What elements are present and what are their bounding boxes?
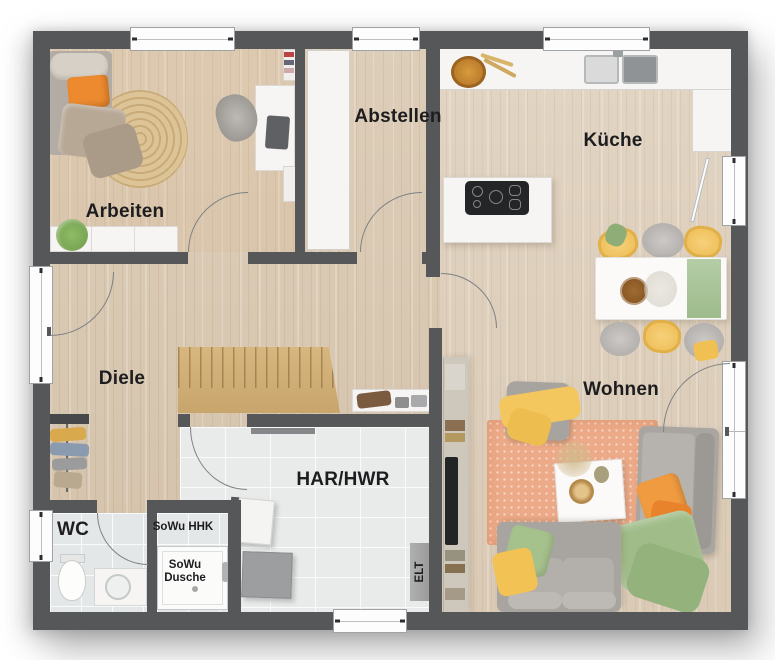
wc-sink: [105, 574, 131, 600]
sofa-back-cushion: [508, 592, 562, 609]
plant: [56, 219, 88, 251]
room-label-wc: WC: [57, 519, 89, 541]
kitchen-tall-cabinet: [692, 90, 731, 152]
wall-har-cap: [178, 414, 190, 427]
window-abstellen: [352, 27, 420, 51]
floor-plan: ELT: [0, 0, 775, 660]
elt-label: ELT: [414, 562, 426, 583]
label-sowu-hhk: SoWu HHK: [153, 521, 213, 533]
wall-arbeiten-south: [50, 252, 188, 264]
window-har: [333, 609, 407, 633]
coat-tan: [53, 471, 82, 489]
label-sowu-dusche: SoWu Dusche: [164, 559, 206, 585]
decor-bowl: [569, 479, 594, 504]
fruit-basket: [451, 56, 486, 88]
shower-drain: [192, 586, 198, 592]
sink-basin-left: [584, 55, 619, 84]
table-runner-green: [687, 259, 721, 318]
room-label-diele: Diele: [99, 368, 145, 390]
label-sowu-dusche-line2: Dusche: [164, 572, 206, 585]
sideboard-seam: [134, 226, 135, 252]
burner: [472, 186, 483, 197]
wall-wohnen-west: [429, 328, 442, 612]
stair-treads: [178, 347, 340, 388]
book-stack: [445, 420, 465, 431]
burner: [473, 200, 481, 208]
coat-grey: [52, 457, 88, 471]
wall-abstellen-south: [248, 252, 357, 264]
coat-yellow: [50, 427, 87, 442]
wall-arbeiten-abstellen: [295, 49, 305, 264]
wall-kueche-west: [426, 49, 440, 277]
burner: [509, 199, 521, 210]
wall-sowu-north: [147, 500, 241, 513]
heat-pump-unit: [241, 551, 293, 599]
staircase: [178, 347, 340, 413]
room-label-arbeiten: Arbeiten: [86, 201, 165, 223]
room-label-kueche: Küche: [583, 130, 642, 152]
room-label-abstellen: Abstellen: [354, 106, 441, 128]
shoes: [395, 397, 409, 408]
table-flowers: [644, 271, 677, 307]
toilet: [58, 560, 86, 601]
wardrobe-rail: [47, 414, 89, 424]
window-kueche-top: [543, 27, 650, 51]
wall-sowu-east: [228, 500, 241, 612]
room-label-har: HAR/HWR: [296, 469, 389, 491]
coat-blue: [50, 442, 90, 457]
label-sowu-dusche-line1: SoWu: [164, 559, 206, 572]
dining-chair-grey: [642, 223, 684, 258]
room-label-wohnen: Wohnen: [583, 379, 659, 401]
shoes: [411, 395, 427, 407]
book-stack: [445, 564, 465, 573]
washing-machine: [235, 498, 275, 546]
wall-har-north: [247, 414, 429, 427]
har-door-leaf: [251, 428, 315, 434]
book-stack: [445, 550, 465, 561]
book-stack: [445, 433, 465, 442]
desk-monitor: [265, 115, 290, 150]
dining-chair-grey: [600, 322, 640, 356]
window-arbeiten: [130, 27, 235, 51]
wall-exterior-right: [731, 31, 748, 630]
book-stack: [445, 588, 465, 600]
shelf-books-red: [284, 52, 294, 57]
burner: [489, 190, 503, 204]
window-wc: [29, 510, 53, 562]
shelf-books-grey: [284, 60, 294, 65]
abstellen-cabinet: [307, 50, 350, 250]
window-kueche-right: [722, 156, 746, 226]
shelf-books-tan: [284, 68, 294, 73]
wall-wc-north: [50, 500, 97, 513]
sideboard-seam: [91, 226, 92, 252]
tv-screen: [445, 457, 458, 545]
burner: [509, 185, 521, 196]
sofa-back-cushion: [562, 592, 616, 609]
sideboard-decor: [445, 364, 465, 390]
dried-plant: [556, 441, 592, 477]
sink-basin-right: [622, 55, 658, 84]
vase: [594, 466, 609, 483]
